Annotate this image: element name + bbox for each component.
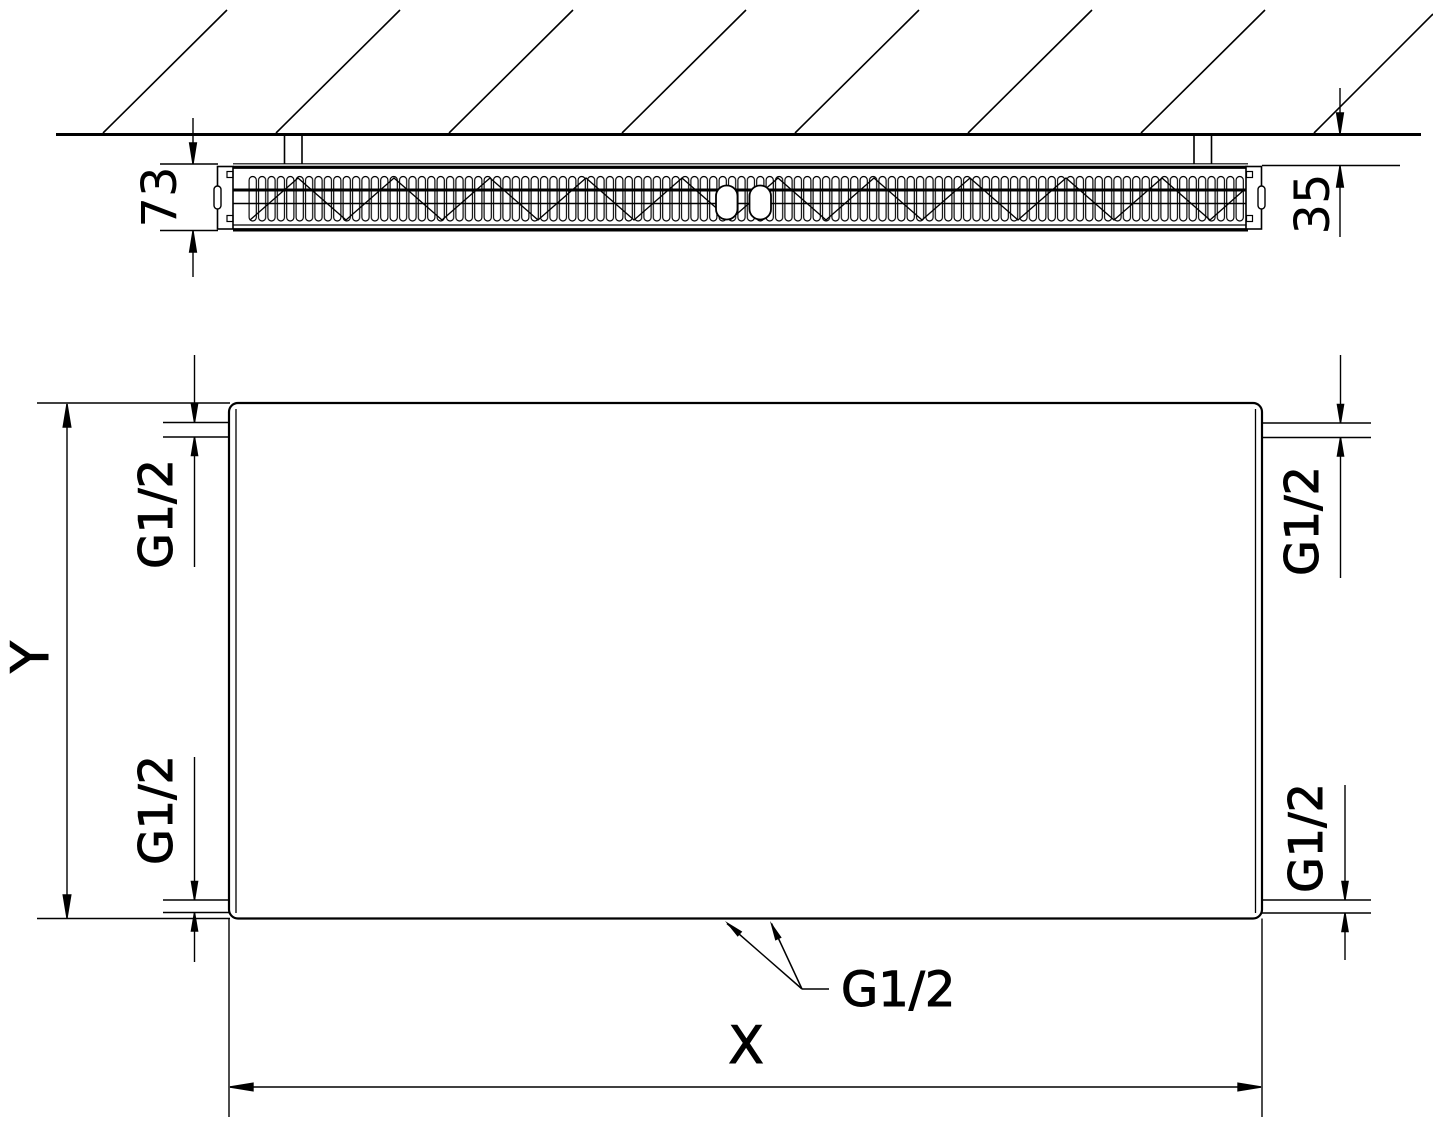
end-cap-right: [1246, 167, 1265, 230]
drawing-canvas: 73 35: [0, 0, 1433, 1125]
connection-label-bottom-right: G1/2: [1279, 783, 1333, 893]
connection-dim-top-left: [191, 355, 197, 567]
top-view: 73 35: [56, 10, 1433, 277]
radiator-cross-section: [214, 164, 1265, 230]
wall-bracket-right: [1194, 136, 1212, 164]
connection-stub-bottom-left: [163, 900, 229, 913]
end-cap-left: [214, 167, 233, 230]
connection-stub-top-right: [1262, 423, 1371, 438]
connection-label-top-right: G1/2: [1275, 466, 1329, 576]
depth-dimension-label: 73: [132, 166, 188, 227]
convector-fins: [248, 176, 1244, 223]
width-dimension-label: X: [728, 1016, 764, 1076]
center-connections-leader: [725, 921, 829, 989]
front-view: G1/2 G1/2 G1/2 G1/2: [1, 355, 1371, 1117]
connection-dim-top-right: [1337, 355, 1343, 578]
center-connections-label: G1/2: [841, 962, 955, 1018]
wall-bracket-left: [285, 136, 303, 164]
center-boss-left: [716, 186, 738, 220]
wall-hatching-icon: [103, 10, 1433, 133]
center-boss-right: [750, 186, 772, 220]
connection-stub-bottom-right: [1262, 900, 1371, 913]
connection-stub-top-left: [163, 423, 229, 438]
connection-label-bottom-left: G1/2: [129, 755, 183, 865]
connection-label-top-left: G1/2: [129, 459, 183, 569]
connection-dim-bottom-left: [191, 757, 197, 962]
radiator-front-panel: [229, 403, 1262, 919]
height-dimension-label: Y: [1, 641, 61, 674]
wall-distance-dimension-label: 35: [1285, 173, 1341, 234]
connection-dim-bottom-right: [1342, 785, 1348, 960]
radiator-technical-drawing: 73 35: [0, 0, 1433, 1125]
